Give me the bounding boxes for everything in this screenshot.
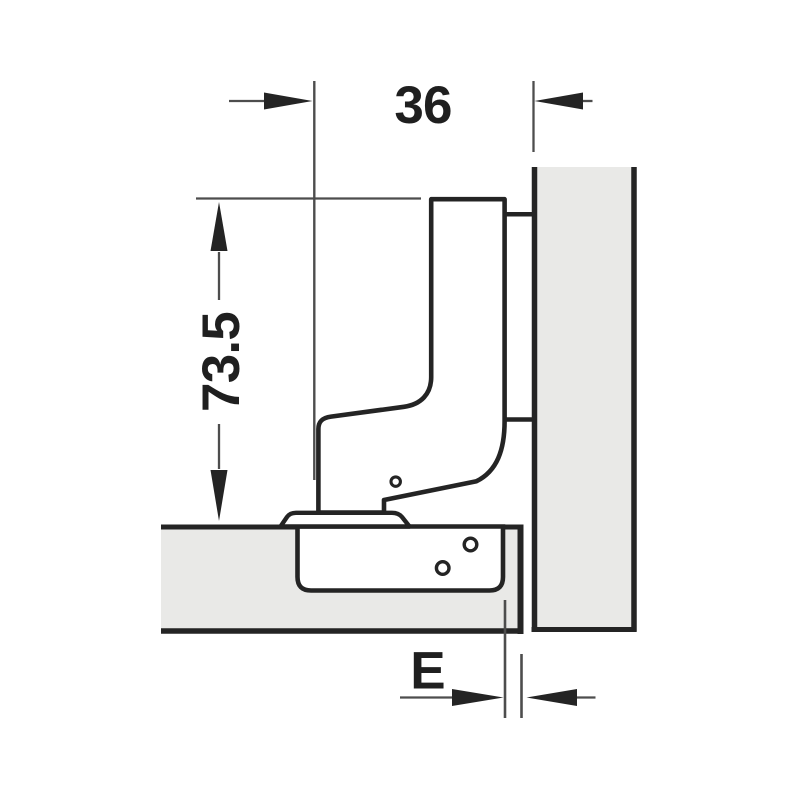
svg-text:36: 36 xyxy=(394,76,451,135)
svg-text:E: E xyxy=(410,642,445,701)
svg-text:73.5: 73.5 xyxy=(192,312,251,412)
